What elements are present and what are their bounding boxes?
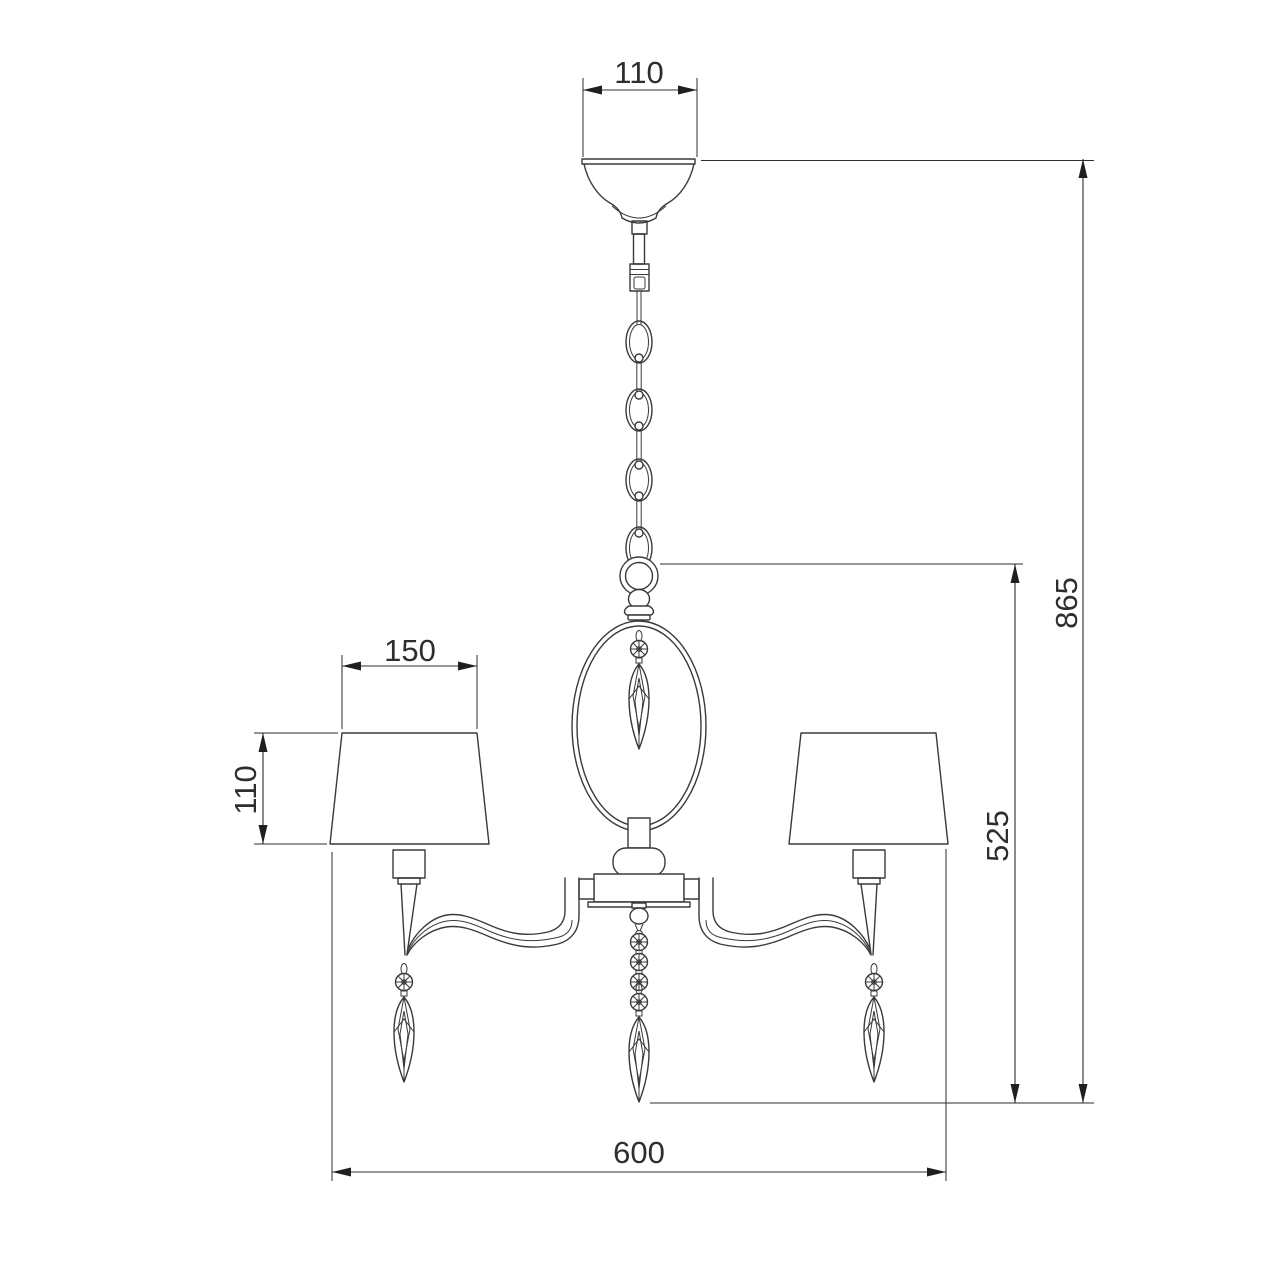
arm-assembly-left — [330, 733, 579, 1082]
candle-crystal-drop — [864, 964, 884, 1083]
center-hub — [579, 818, 699, 907]
candle-sleeve — [853, 850, 885, 878]
top-finial — [625, 590, 654, 621]
dim-label-body-height: 525 — [980, 810, 1015, 862]
arm-inner-line — [713, 878, 870, 949]
dim-label-overall-width: 600 — [613, 1135, 665, 1170]
dim-label-canopy-width: 110 — [614, 55, 663, 90]
chandelier-drawing — [330, 159, 948, 1102]
center-crystal-drop — [629, 984, 649, 1103]
dimension-annotations: 110 150 110 865 525 600 — [228, 55, 1094, 1181]
dimension-arrowheads — [259, 86, 1088, 1177]
candle-collar — [858, 878, 880, 884]
bottom-bead-chain — [629, 903, 649, 1102]
drawing-sheet: 110 150 110 865 525 600 — [0, 0, 1280, 1280]
lampshade — [789, 733, 948, 844]
ceiling-canopy — [582, 159, 695, 223]
chandelier-dimension-drawing: 110 150 110 865 525 600 — [0, 0, 1280, 1280]
canopy-stem-fitting — [630, 221, 649, 325]
oval-crystal-drop — [629, 631, 649, 750]
dim-label-shade-width: 150 — [384, 633, 436, 668]
dim-label-shade-height: 110 — [228, 765, 263, 814]
extension-lines — [254, 78, 1094, 1181]
dimension-lines — [263, 90, 1083, 1172]
dim-label-overall-height: 865 — [1049, 577, 1084, 629]
suspension-chain — [626, 321, 652, 569]
arm-outer-line — [699, 878, 871, 955]
arm-assembly-right — [699, 733, 948, 1082]
